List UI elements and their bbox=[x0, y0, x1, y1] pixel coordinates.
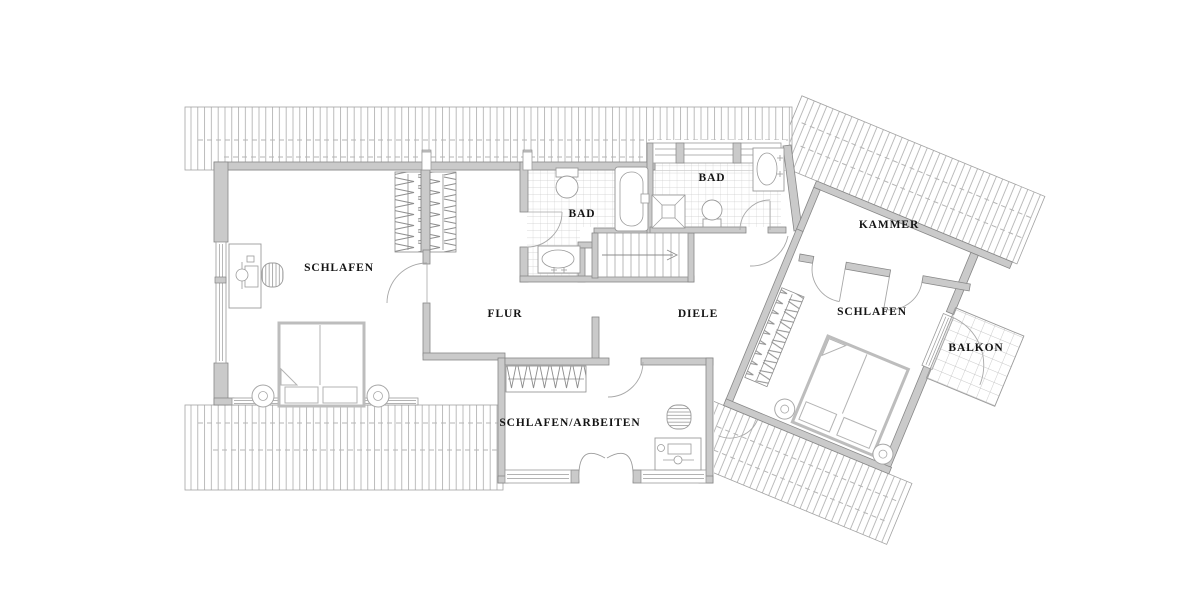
wall bbox=[706, 358, 713, 483]
double-bed-icon bbox=[279, 323, 364, 406]
wall bbox=[641, 358, 713, 365]
door-swing-arc bbox=[807, 263, 845, 301]
room-label-schlafen-right: SCHLAFEN bbox=[837, 306, 907, 318]
wall bbox=[688, 233, 694, 282]
desk-icon bbox=[655, 438, 701, 470]
window[interactable] bbox=[215, 242, 226, 363]
wall bbox=[214, 162, 228, 242]
wall bbox=[797, 187, 821, 231]
room-label-flur: FLUR bbox=[488, 308, 523, 320]
sink-icon bbox=[753, 148, 784, 191]
toilet-icon bbox=[556, 168, 578, 198]
wall bbox=[423, 250, 430, 264]
roof-band-wing-top bbox=[774, 96, 1045, 264]
wall bbox=[799, 254, 814, 263]
wardrobe-icon bbox=[506, 366, 586, 392]
desk-icon bbox=[229, 244, 261, 308]
door-leaf bbox=[884, 277, 890, 309]
wall bbox=[423, 353, 505, 360]
wall bbox=[421, 170, 430, 252]
window[interactable] bbox=[641, 470, 706, 483]
window[interactable] bbox=[505, 470, 571, 483]
room-label-schlafen-arbeiten: SCHLAFEN/ARBEITEN bbox=[499, 417, 640, 429]
staircase[interactable] bbox=[598, 233, 688, 277]
wall bbox=[423, 303, 430, 356]
office-chair-icon bbox=[667, 405, 691, 429]
room-label-bad-left: BAD bbox=[569, 208, 596, 220]
office-chair-icon bbox=[262, 263, 283, 287]
door-swing-arc bbox=[387, 263, 427, 303]
wall bbox=[505, 358, 609, 365]
shower-icon bbox=[652, 195, 685, 228]
room-label-schlafen-left: SCHLAFEN bbox=[304, 262, 374, 274]
wall bbox=[571, 470, 579, 483]
roof-band-bottom bbox=[185, 405, 503, 490]
roof-window[interactable] bbox=[422, 150, 431, 170]
room-label-diele: DIELE bbox=[678, 308, 718, 320]
wall bbox=[214, 162, 655, 170]
floor-plan-page: SCHLAFEN BAD BAD FLUR DIELE KAMMER SCHLA… bbox=[0, 0, 1200, 600]
door-swing-arc bbox=[750, 236, 788, 266]
roof-window[interactable] bbox=[523, 150, 532, 170]
bathtub-icon bbox=[615, 167, 649, 231]
room-label-bad-right: BAD bbox=[699, 172, 726, 184]
door-swing-arc bbox=[608, 362, 643, 397]
room-label-kammer: KAMMER bbox=[859, 219, 919, 231]
wall bbox=[592, 317, 599, 362]
toilet-icon bbox=[702, 200, 722, 227]
french-door-icon[interactable] bbox=[579, 453, 633, 481]
wall bbox=[845, 262, 891, 277]
floor-plan-drawing: SCHLAFEN BAD BAD FLUR DIELE KAMMER SCHLA… bbox=[0, 0, 1200, 600]
wall bbox=[214, 398, 234, 405]
door-leaf bbox=[839, 269, 845, 301]
room-label-balkon: BALKON bbox=[948, 342, 1003, 354]
sink-icon bbox=[538, 246, 580, 273]
wall bbox=[592, 233, 598, 278]
wall bbox=[633, 470, 641, 483]
wall bbox=[768, 227, 786, 233]
